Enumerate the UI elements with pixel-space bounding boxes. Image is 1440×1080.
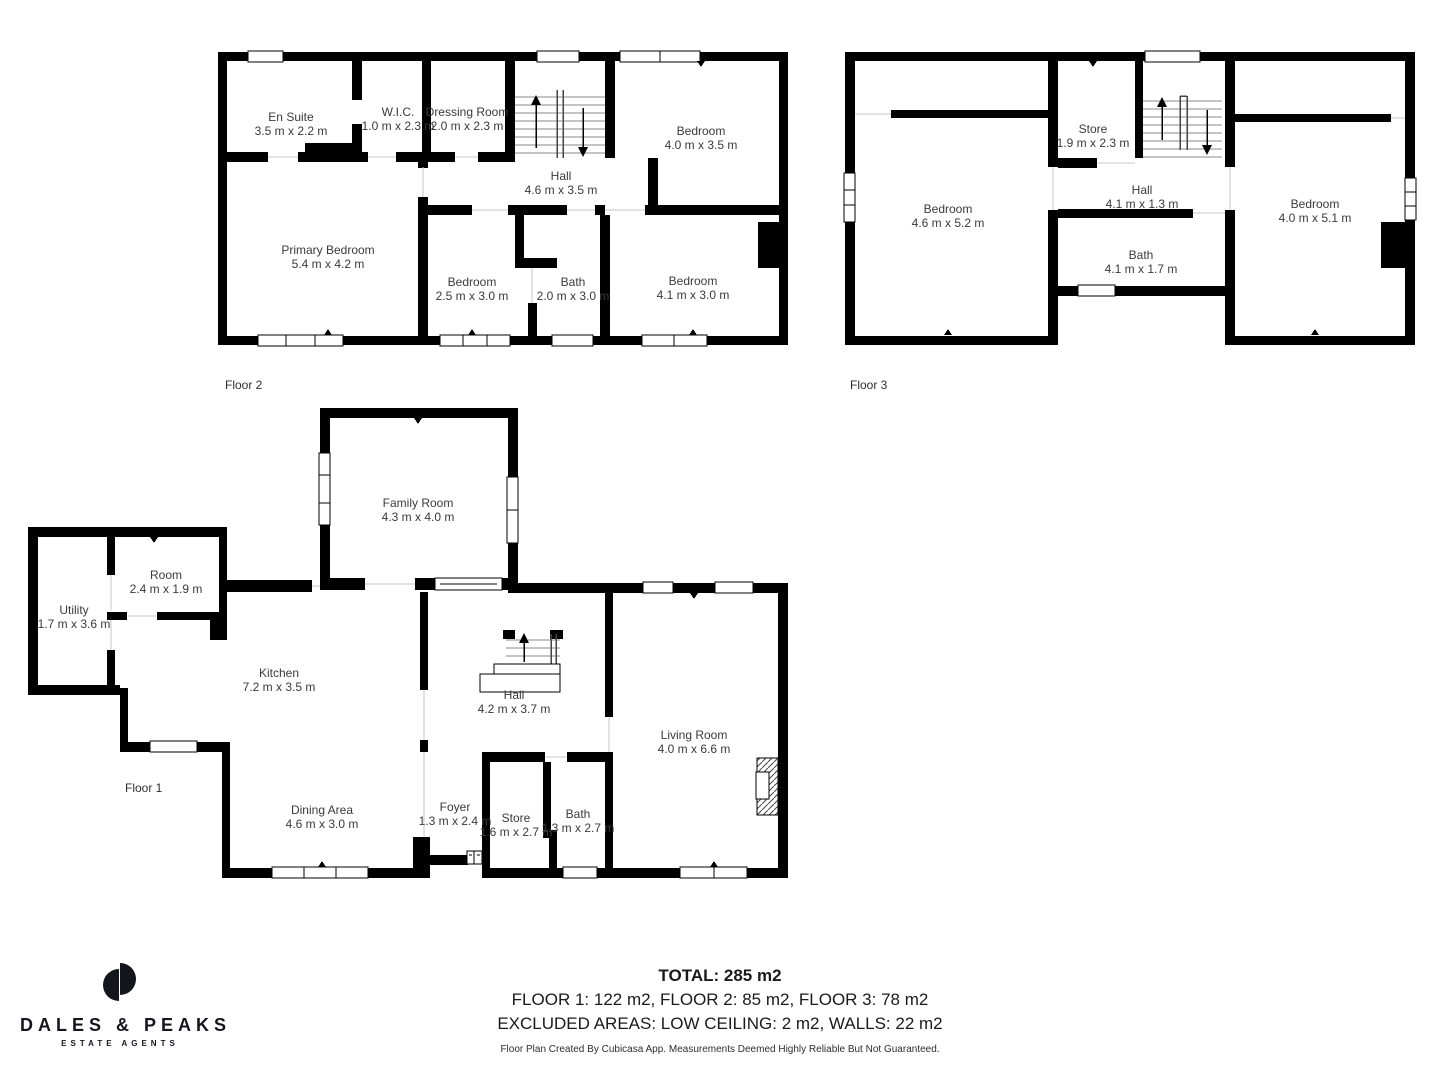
window-icon	[537, 51, 579, 62]
room-label-primary-bedroom: Primary Bedroom 5.4 m x 4.2 m	[281, 243, 374, 271]
room-dims: 4.2 m x 3.7 m	[478, 702, 551, 716]
room-label-bedroom-ne: Bedroom 4.0 m x 3.5 m	[665, 124, 738, 152]
room-label-room: Room 2.4 m x 1.9 m	[130, 568, 203, 596]
window-icon	[150, 741, 197, 752]
room-label-store-f3: Store 1.9 m x 2.3 m	[1057, 122, 1130, 150]
room-name: Kitchen	[243, 666, 316, 680]
room-label-kitchen: Kitchen 7.2 m x 3.5 m	[243, 666, 316, 694]
window-icon	[643, 582, 673, 593]
electrical-panel-icon	[467, 851, 482, 864]
chimney-block	[1381, 222, 1405, 268]
room-dims: 4.3 m x 4.0 m	[382, 510, 455, 524]
room-label-bedroom-left: Bedroom 4.6 m x 5.2 m	[912, 202, 985, 230]
window-icon	[258, 335, 343, 346]
window-icon	[440, 335, 510, 346]
window-icon	[1405, 178, 1416, 220]
window-icon	[319, 453, 330, 525]
room-label-family-room: Family Room 4.3 m x 4.0 m	[382, 496, 455, 524]
room-name: Hall	[478, 688, 551, 702]
floor-areas: FLOOR 1: 122 m2, FLOOR 2: 85 m2, FLOOR 3…	[0, 990, 1440, 1010]
room-label-utility: Utility 1.7 m x 3.6 m	[38, 603, 111, 631]
room-label-hall-f1: Hall 4.2 m x 3.7 m	[478, 688, 551, 716]
room-dims: 4.0 m x 6.6 m	[658, 742, 731, 756]
stairs-icon	[480, 633, 560, 692]
room-dims: 4.1 m x 3.0 m	[657, 288, 730, 302]
room-dims: 4.6 m x 3.0 m	[286, 817, 359, 831]
room-name: W.I.C.	[362, 105, 435, 119]
room-dims: 1.7 m x 3.6 m	[38, 617, 111, 631]
floor-plan-drawing	[0, 0, 1440, 1080]
window-icon	[715, 582, 753, 593]
room-name: Bath	[1105, 248, 1178, 262]
room-dims: 4.0 m x 5.1 m	[1279, 211, 1352, 225]
room-name: En Suite	[255, 110, 328, 124]
room-dims: 1.0 m x 2.3 m	[362, 119, 435, 133]
room-dims: 4.6 m x 5.2 m	[912, 216, 985, 230]
room-dims: 5.4 m x 4.2 m	[281, 257, 374, 271]
floor1-plan	[28, 408, 788, 878]
room-label-bath-f2: Bath 2.0 m x 3.0 m	[537, 275, 610, 303]
chimney-block	[758, 222, 779, 268]
room-name: Bath	[537, 275, 610, 289]
stairs-icon	[1143, 96, 1222, 157]
area-summary: TOTAL: 285 m2 FLOOR 1: 122 m2, FLOOR 2: …	[0, 966, 1440, 1055]
room-name: Bedroom	[1279, 197, 1352, 211]
disclaimer: Floor Plan Created By Cubicasa App. Meas…	[0, 1044, 1440, 1055]
room-dims: 4.1 m x 1.3 m	[1106, 197, 1179, 211]
room-name: Bath	[542, 807, 615, 821]
room-dims: 2.5 m x 3.0 m	[436, 289, 509, 303]
window-icon	[563, 867, 597, 878]
room-label-bath-f3: Bath 4.1 m x 1.7 m	[1105, 248, 1178, 276]
total-area: TOTAL: 285 m2	[0, 966, 1440, 986]
fireplace-icon	[756, 758, 778, 815]
room-dims: 4.6 m x 3.5 m	[525, 183, 598, 197]
room-label-bedroom-s2: Bedroom 4.1 m x 3.0 m	[657, 274, 730, 302]
floor-plan-page: En Suite 3.5 m x 2.2 m W.I.C. 1.0 m x 2.…	[0, 0, 1440, 1080]
window-icon	[844, 173, 855, 222]
room-name: Hall	[1106, 183, 1179, 197]
room-name: Hall	[525, 169, 598, 183]
room-name: Store	[1057, 122, 1130, 136]
window-icon	[552, 335, 593, 346]
room-name: Dining Area	[286, 803, 359, 817]
window-icon	[1145, 51, 1200, 62]
room-label-hall-f2: Hall 4.6 m x 3.5 m	[525, 169, 598, 197]
room-name: Dressing Room	[426, 105, 509, 119]
room-name: Utility	[38, 603, 111, 617]
room-dims: 1.9 m x 2.3 m	[1057, 136, 1130, 150]
room-dims: 4.1 m x 1.7 m	[1105, 262, 1178, 276]
floor2-label: Floor 2	[225, 378, 262, 392]
room-dims: 2.4 m x 1.9 m	[130, 582, 203, 596]
room-dims: 2.0 m x 3.0 m	[537, 289, 610, 303]
room-label-en-suite: En Suite 3.5 m x 2.2 m	[255, 110, 328, 138]
room-label-bath-f1: Bath 1.3 m x 2.7 m	[542, 807, 615, 835]
room-dims: 2.0 m x 2.3 m	[426, 119, 509, 133]
room-label-dining-area: Dining Area 4.6 m x 3.0 m	[286, 803, 359, 831]
room-label-hall-f3: Hall 4.1 m x 1.3 m	[1106, 183, 1179, 211]
floor1-walls	[28, 408, 788, 878]
room-name: Family Room	[382, 496, 455, 510]
room-name: Bedroom	[912, 202, 985, 216]
room-label-bedroom-s1: Bedroom 2.5 m x 3.0 m	[436, 275, 509, 303]
room-label-living-room: Living Room 4.0 m x 6.6 m	[658, 728, 731, 756]
floor3-label: Floor 3	[850, 378, 887, 392]
room-label-dressing-room: Dressing Room 2.0 m x 2.3 m	[426, 105, 509, 133]
room-dims: 1.3 m x 2.7 m	[542, 821, 615, 835]
window-icon	[272, 867, 368, 878]
excluded-areas: EXCLUDED AREAS: LOW CEILING: 2 m2, WALLS…	[0, 1014, 1440, 1034]
room-label-wic: W.I.C. 1.0 m x 2.3 m	[362, 105, 435, 133]
room-name: Primary Bedroom	[281, 243, 374, 257]
floor1-label: Floor 1	[125, 781, 162, 795]
stairs-icon	[515, 90, 605, 158]
room-label-bedroom-right: Bedroom 4.0 m x 5.1 m	[1279, 197, 1352, 225]
window-icon	[1078, 285, 1115, 296]
window-icon	[248, 51, 283, 62]
room-name: Bedroom	[436, 275, 509, 289]
room-dims: 7.2 m x 3.5 m	[243, 680, 316, 694]
room-dims: 3.5 m x 2.2 m	[255, 124, 328, 138]
room-dims: 4.0 m x 3.5 m	[665, 138, 738, 152]
room-name: Bedroom	[657, 274, 730, 288]
room-name: Room	[130, 568, 203, 582]
room-name: Living Room	[658, 728, 731, 742]
room-name: Bedroom	[665, 124, 738, 138]
